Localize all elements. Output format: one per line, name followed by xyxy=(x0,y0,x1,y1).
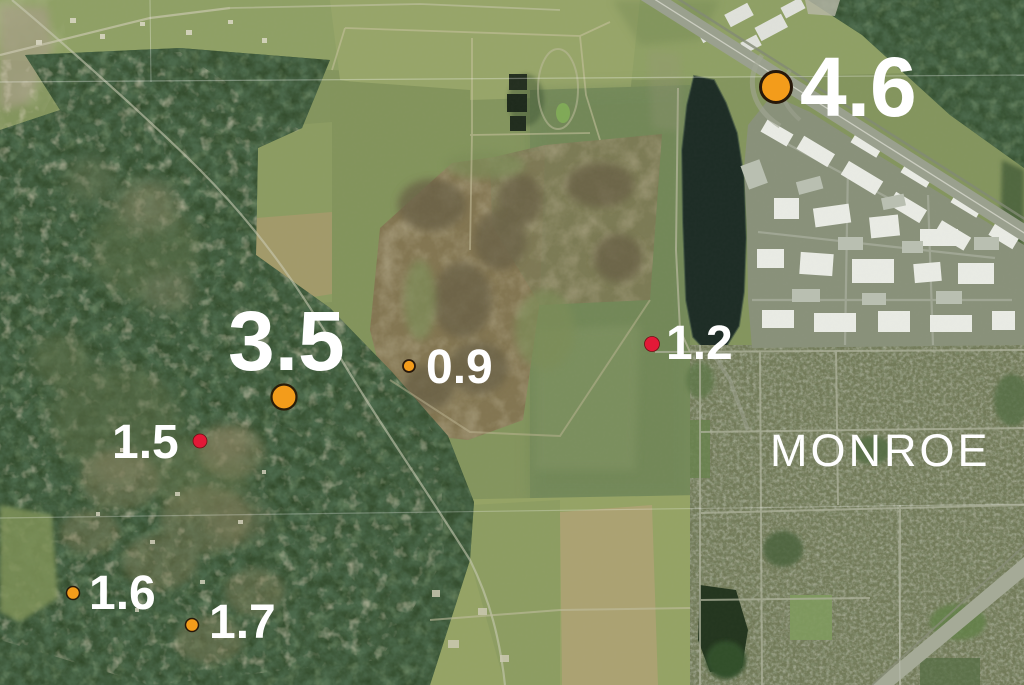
svg-text:0.9: 0.9 xyxy=(426,341,493,394)
svg-text:MONROE: MONROE xyxy=(770,425,991,476)
svg-text:4.6: 4.6 xyxy=(800,40,917,134)
svg-text:1.5: 1.5 xyxy=(112,416,179,469)
svg-text:1.6: 1.6 xyxy=(89,567,156,620)
svg-text:1.2: 1.2 xyxy=(666,317,733,370)
svg-text:3.5: 3.5 xyxy=(228,294,345,388)
svg-text:1.7: 1.7 xyxy=(209,596,276,649)
